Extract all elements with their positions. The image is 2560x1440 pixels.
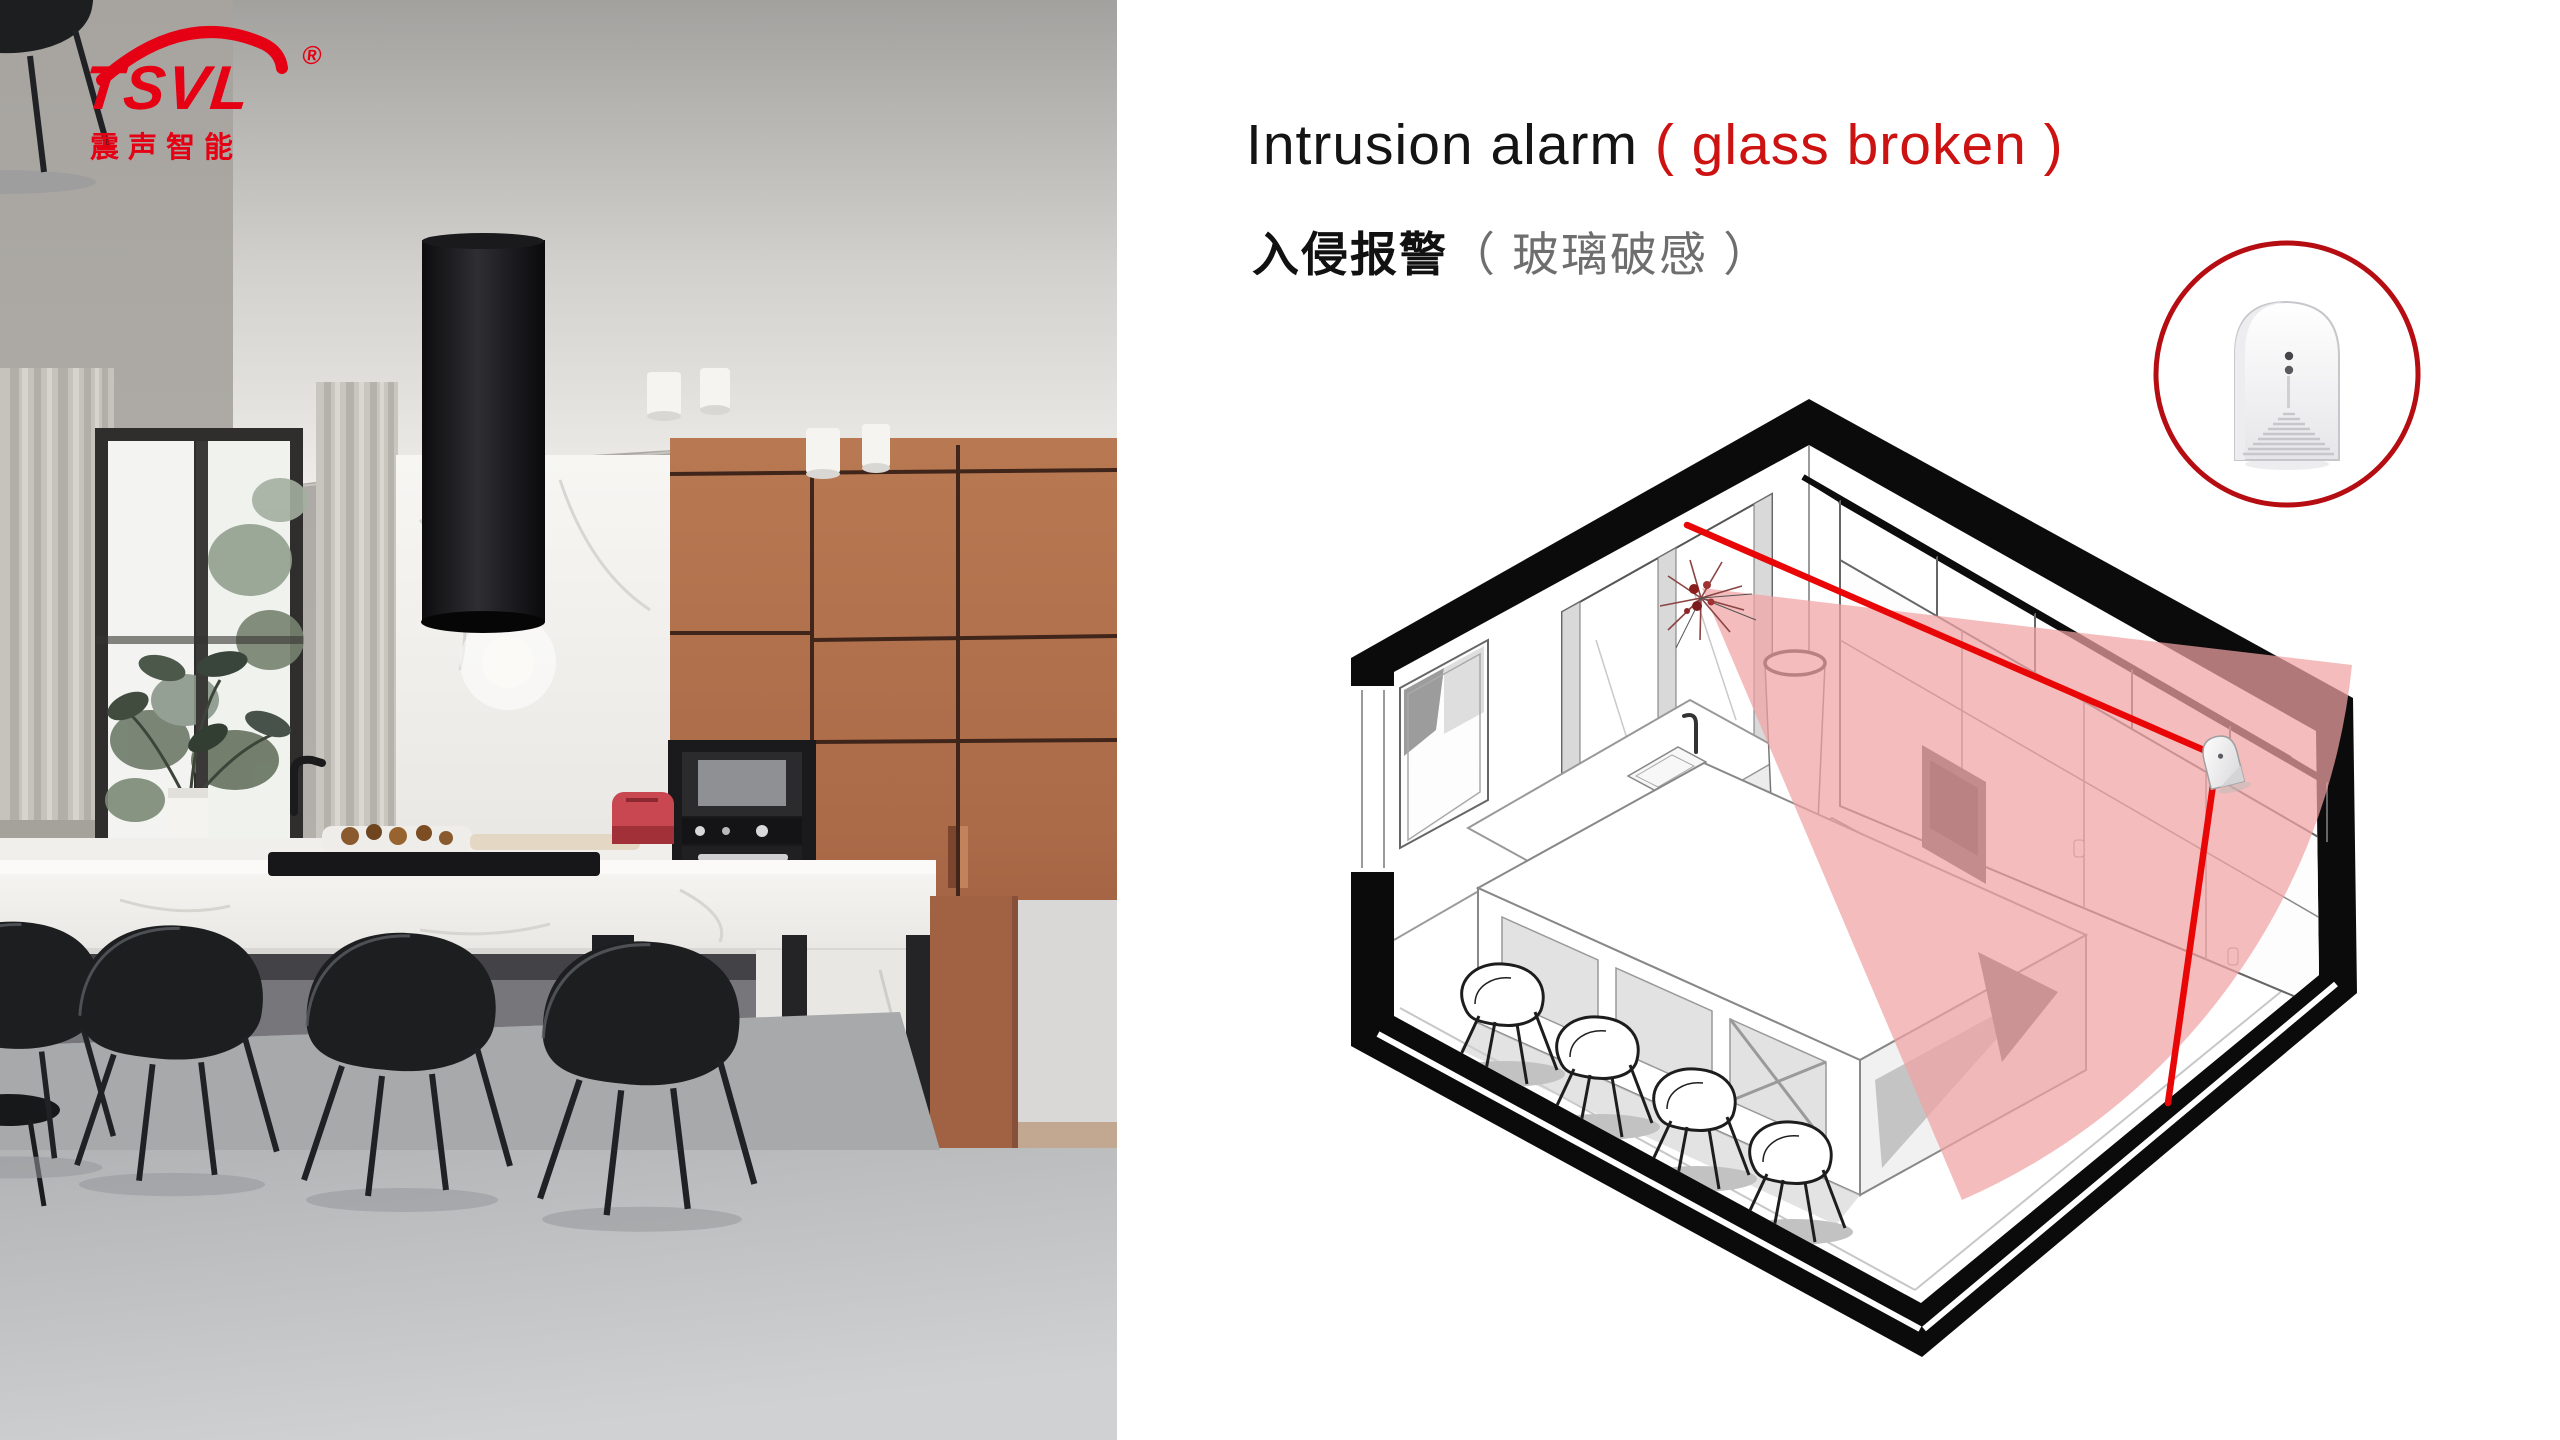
page: TSVL® 震声智能 Intrusion alarm ( glass broke… — [0, 0, 2560, 1440]
glass-break-sensor-icon — [2235, 302, 2339, 470]
sensor-coverage-diagram — [0, 0, 2560, 1440]
product-badge — [2156, 243, 2418, 505]
wall-cut-window-gap — [1348, 686, 1397, 872]
